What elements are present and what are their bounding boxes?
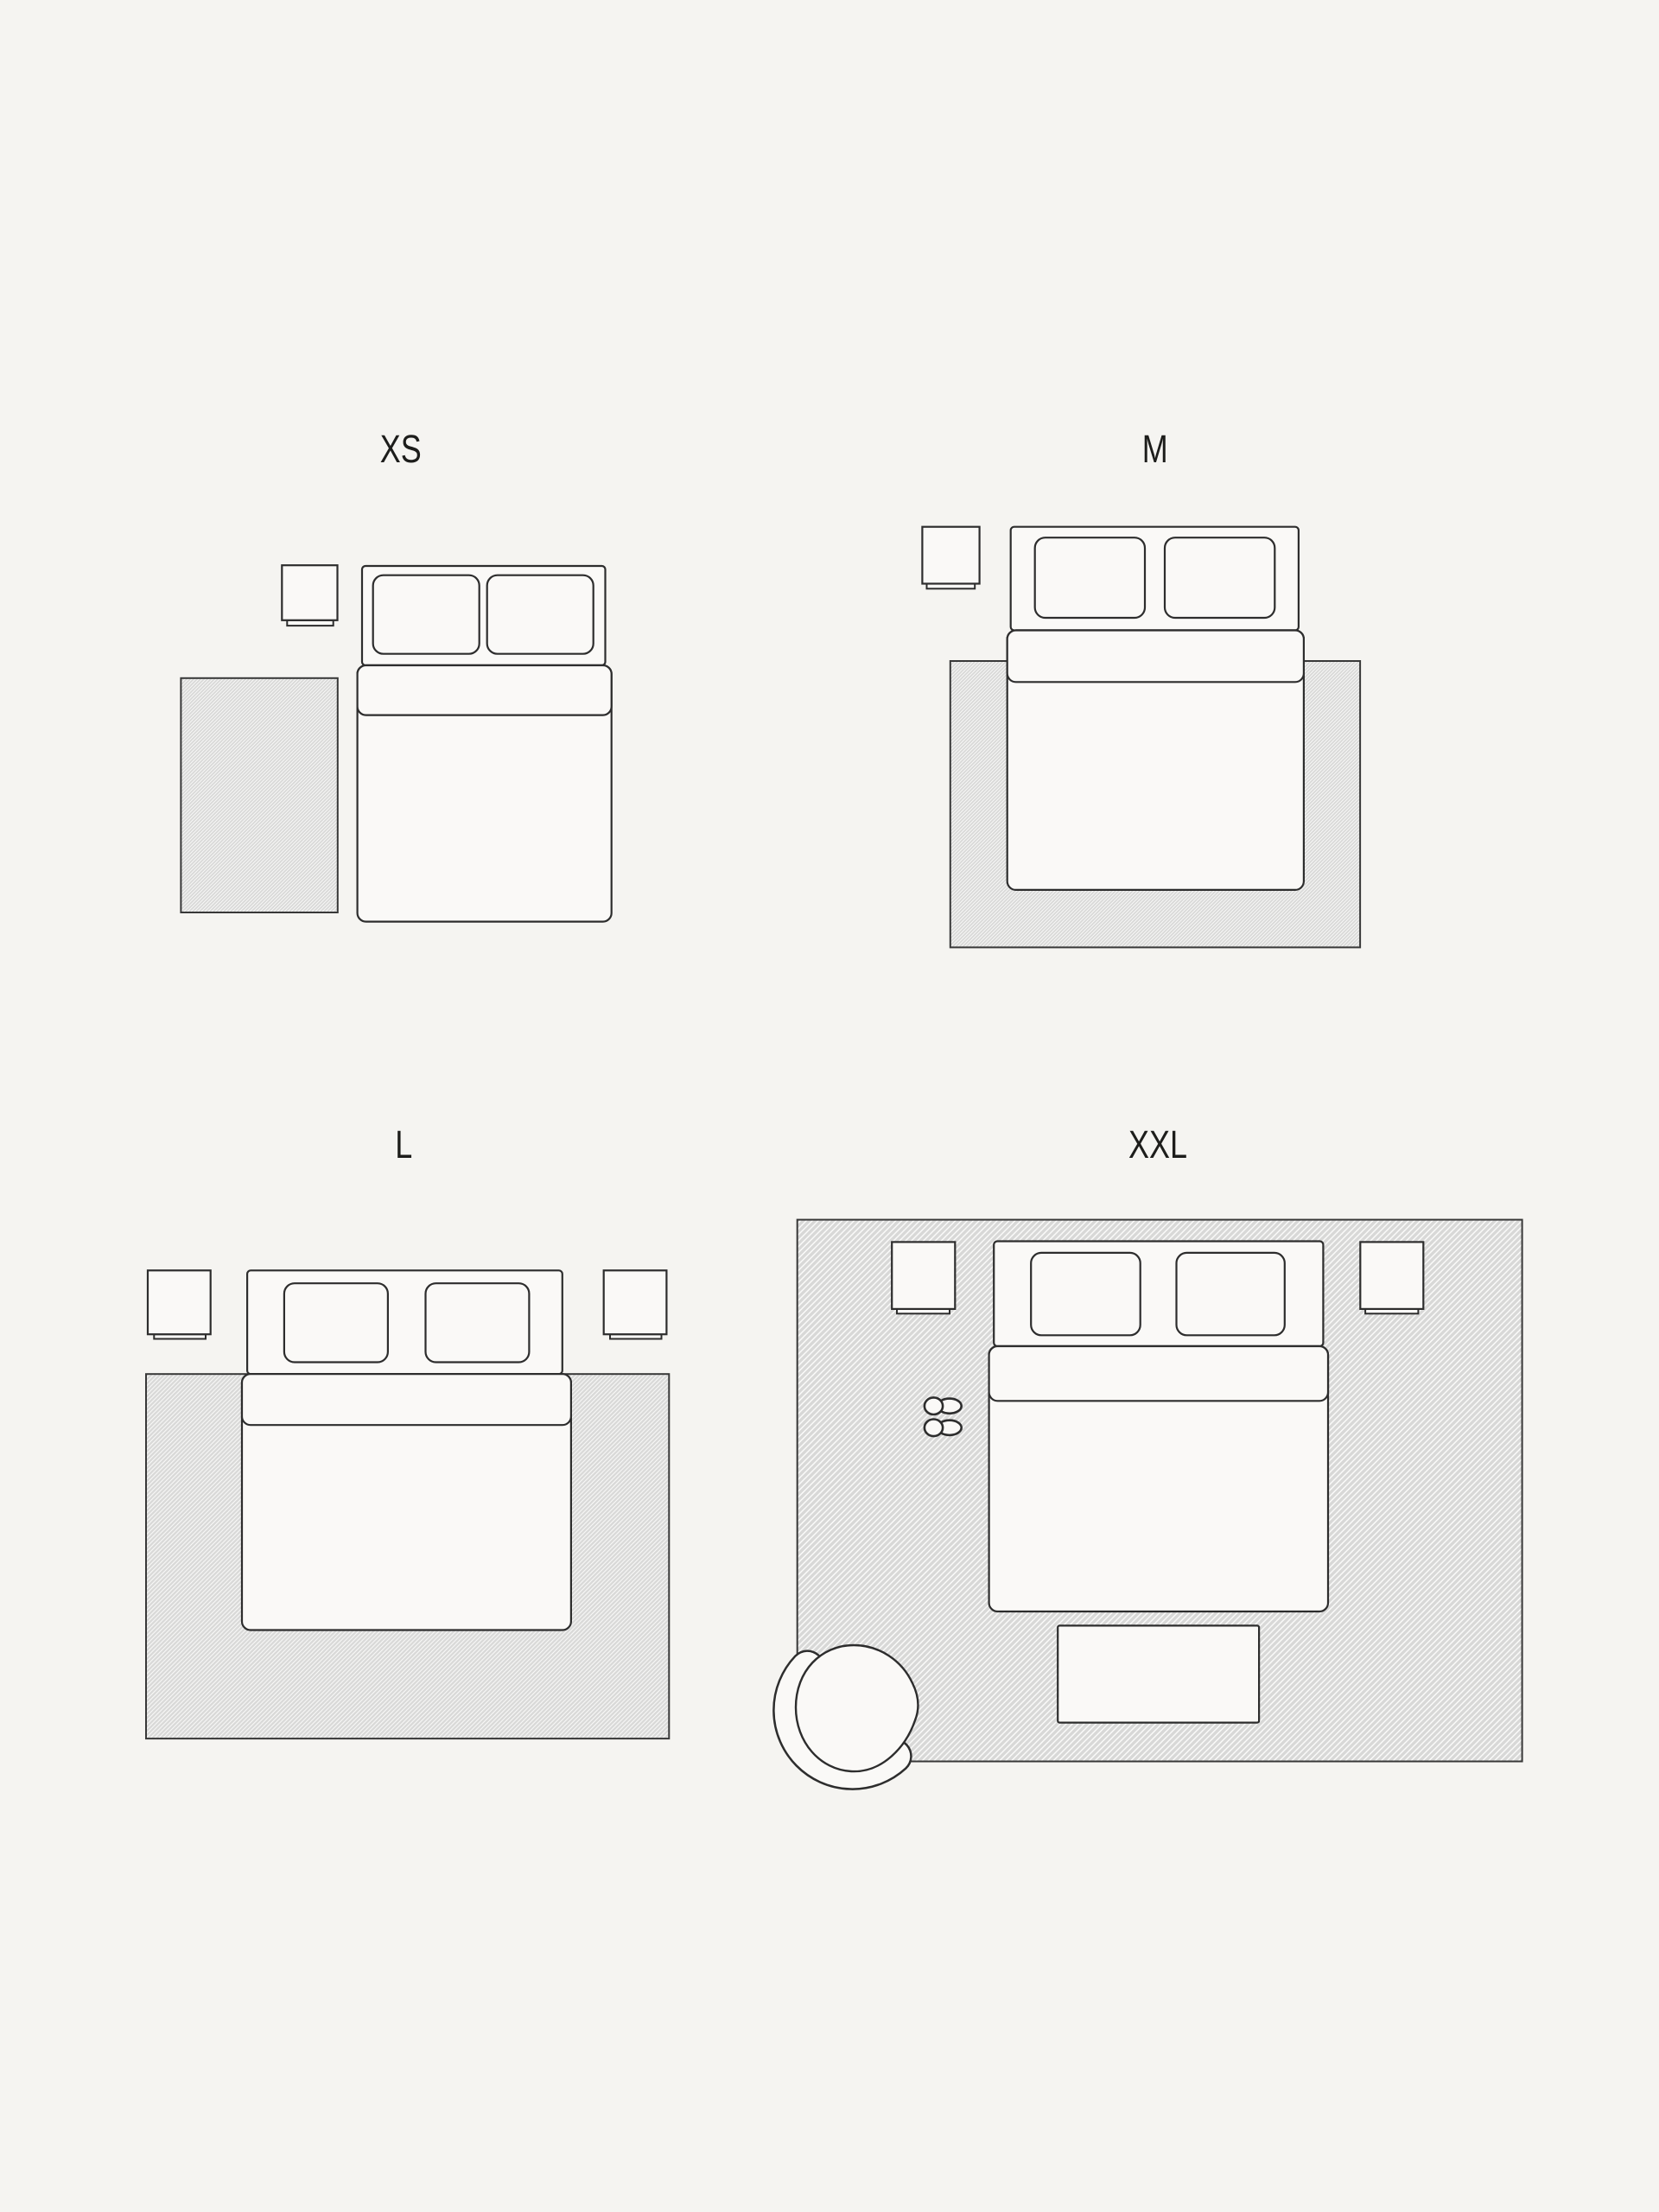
svg-text:XS: XS bbox=[380, 427, 422, 471]
svg-text:L: L bbox=[395, 1122, 412, 1166]
svg-text:XXL: XXL bbox=[1128, 1122, 1187, 1166]
svg-text:M: M bbox=[1142, 427, 1168, 471]
